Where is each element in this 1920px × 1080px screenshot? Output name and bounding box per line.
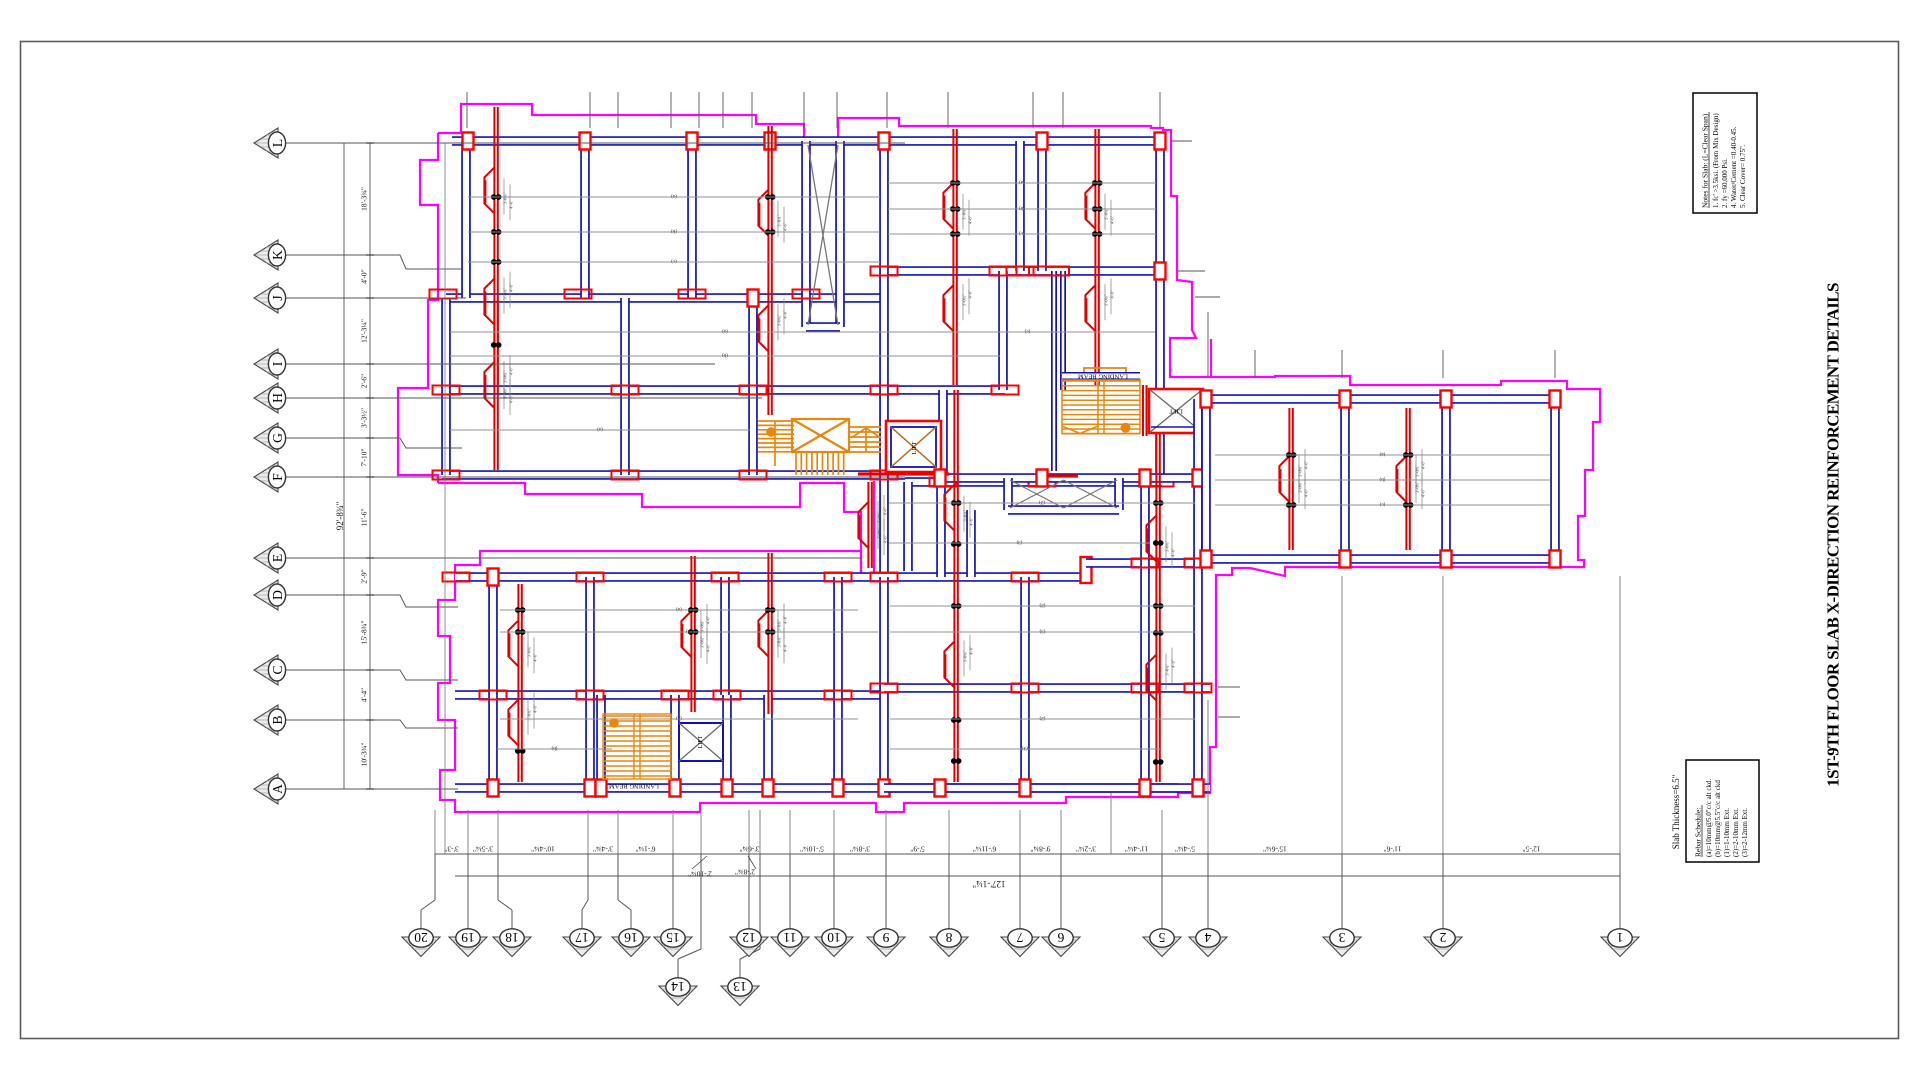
svg-text:G: G — [270, 433, 285, 443]
svg-text:4'-6": 4'-6" — [1110, 215, 1115, 224]
svg-text:4'-6": 4'-6" — [783, 310, 788, 319]
svg-text:5'-9": 5'-9" — [910, 845, 924, 854]
svg-text:L: L — [270, 139, 285, 147]
svg-text:3'-0¾": 3'-0¾" — [963, 509, 968, 521]
svg-text:(2): (2) — [1039, 499, 1045, 504]
svg-text:17: 17 — [575, 930, 589, 945]
svg-text:12'-3¼": 12'-3¼" — [360, 319, 369, 343]
svg-text:5'-10¼": 5'-10¼" — [800, 845, 824, 854]
svg-text:4'-0": 4'-0" — [360, 269, 369, 283]
svg-text:(b): (b) — [686, 628, 692, 633]
svg-text:3'-0¾": 3'-0¾" — [1165, 540, 1170, 552]
svg-text:D: D — [270, 590, 285, 600]
svg-text:(b): (b) — [1379, 476, 1385, 481]
svg-text:5. Clear Cover= 0.75".: 5. Clear Cover= 0.75". — [1739, 144, 1747, 208]
svg-text:LIFT: LIFT — [912, 441, 918, 454]
svg-text:(b): (b) — [551, 745, 557, 750]
svg-text:15'-6¼": 15'-6¼" — [1263, 845, 1287, 854]
svg-text:3'-6¾": 3'-6¾" — [739, 845, 759, 854]
svg-text:3'-2¼": 3'-2¼" — [1076, 845, 1096, 854]
svg-text:4'-6": 4'-6" — [1421, 461, 1426, 470]
svg-text:(2): (2) — [1039, 602, 1045, 607]
svg-text:3'-0¾": 3'-0¾" — [877, 527, 882, 539]
svg-text:2'-10¼": 2'-10¼" — [688, 870, 712, 879]
svg-text:B: B — [270, 715, 285, 724]
svg-text:3'-0¾": 3'-0¾" — [503, 371, 508, 383]
svg-text:4'-6": 4'-6" — [1171, 548, 1176, 557]
svg-text:Notes for Slab: (L=Clear Span): Notes for Slab: (L=Clear Span) — [1701, 113, 1710, 208]
svg-text:4'-6": 4'-6" — [783, 222, 788, 231]
svg-text:2: 2 — [1440, 930, 1447, 945]
svg-text:7'-10": 7'-10" — [360, 448, 369, 466]
svg-text:4'-6": 4'-6" — [706, 644, 711, 653]
svg-text:F: F — [270, 473, 285, 481]
svg-text:4'-6": 4'-6" — [533, 653, 538, 662]
svg-text:4'-6": 4'-6" — [783, 615, 788, 624]
svg-text:(2): (2) — [1039, 715, 1045, 720]
svg-text:E: E — [270, 554, 285, 562]
svg-text:4'-6": 4'-6" — [968, 290, 973, 299]
svg-text:10: 10 — [827, 930, 841, 945]
svg-text:I: I — [270, 361, 285, 366]
svg-text:J: J — [270, 295, 285, 300]
svg-text:C: C — [270, 665, 285, 674]
svg-text:2'-9": 2'-9" — [360, 569, 369, 583]
svg-text:92'-8¾": 92'-8¾" — [335, 501, 345, 530]
svg-text:4'-6": 4'-6" — [783, 643, 788, 652]
svg-text:4'-6": 4'-6" — [883, 507, 888, 516]
svg-text:4'-6": 4'-6" — [509, 395, 514, 404]
svg-text:4'-6": 4'-6" — [883, 535, 888, 544]
svg-text:1ST-9TH FLOOR SLAB X-DIRECTION: 1ST-9TH FLOOR SLAB X-DIRECTION REINFORCE… — [1824, 283, 1843, 787]
svg-text:4'-6": 4'-6" — [706, 616, 711, 625]
svg-text:A: A — [270, 784, 285, 794]
svg-text:3'-3½": 3'-3½" — [360, 408, 369, 428]
svg-text:3'-3": 3'-3" — [444, 845, 458, 854]
svg-text:11'-6": 11'-6" — [360, 509, 369, 527]
svg-text:18'-3¾": 18'-3¾" — [360, 187, 369, 211]
svg-text:3'-0¾": 3'-0¾" — [1298, 465, 1303, 477]
svg-text:4'-6": 4'-6" — [1421, 489, 1426, 498]
svg-text:2'-8¾": 2'-8¾" — [735, 868, 755, 877]
svg-text:LANDING BEAM: LANDING BEAM — [1078, 373, 1128, 380]
svg-text:(a): (a) — [722, 328, 728, 333]
svg-text:3'-0¾": 3'-0¾" — [1415, 481, 1420, 493]
svg-text:(2)=2-10mm Ext.: (2)=2-10mm Ext. — [1732, 808, 1740, 857]
svg-text:18: 18 — [505, 930, 519, 945]
svg-text:3'-0¾": 3'-0¾" — [962, 208, 967, 220]
svg-text:(b): (b) — [1019, 205, 1025, 210]
svg-text:(3)=2-12mm Ext.: (3)=2-12mm Ext. — [1741, 808, 1749, 857]
svg-text:2. fy =60,000 Psi.: 2. fy =60,000 Psi. — [1721, 158, 1729, 208]
svg-text:4'-6": 4'-6" — [509, 200, 514, 209]
svg-text:4'-6": 4'-6" — [533, 704, 538, 713]
svg-text:6: 6 — [1057, 930, 1064, 945]
svg-text:(a): (a) — [671, 193, 677, 198]
svg-text:14: 14 — [671, 979, 685, 994]
svg-text:10'-4¼": 10'-4¼" — [531, 845, 555, 854]
svg-text:3'-8¼": 3'-8¼" — [850, 845, 870, 854]
svg-text:6'-11¼": 6'-11¼" — [973, 845, 997, 854]
svg-text:10'-3¾": 10'-3¾" — [360, 743, 369, 767]
svg-text:(c): (c) — [1379, 501, 1385, 506]
svg-text:3'-0¾": 3'-0¾" — [963, 650, 968, 662]
svg-text:6'-1¼": 6'-1¼" — [635, 845, 655, 854]
svg-text:3'-0¾": 3'-0¾" — [700, 636, 705, 648]
svg-text:(a)=10mm@5.0"c/c alt ckd.: (a)=10mm@5.0"c/c alt ckd. — [1705, 779, 1713, 857]
svg-text:8: 8 — [945, 930, 952, 945]
svg-text:4. Water/Cement =0.40-0.45.: 4. Water/Cement =0.40-0.45. — [1730, 126, 1738, 208]
svg-text:(1)=1-10mm Ext.: (1)=1-10mm Ext. — [1723, 808, 1731, 857]
svg-text:11: 11 — [784, 930, 797, 945]
svg-text:13: 13 — [733, 979, 747, 994]
svg-text:4'-6": 4'-6" — [1171, 659, 1176, 668]
svg-text:5: 5 — [1158, 930, 1165, 945]
svg-text:3'-0¾": 3'-0¾" — [503, 287, 508, 299]
svg-text:127'-1¼": 127'-1¼" — [972, 879, 1005, 889]
svg-text:4'-6": 4'-6" — [509, 283, 514, 292]
svg-text:(a): (a) — [676, 606, 682, 611]
svg-text:(c): (c) — [1024, 328, 1030, 333]
svg-text:Slab Thickness=6.5": Slab Thickness=6.5" — [1671, 774, 1681, 849]
svg-text:19: 19 — [461, 930, 475, 945]
svg-text:3'-0¾": 3'-0¾" — [962, 294, 967, 306]
svg-text:1. fc' >3.5ksi. (From Mix Desi: 1. fc' >3.5ksi. (From Mix Design) — [1712, 113, 1720, 208]
svg-text:4'-6": 4'-6" — [969, 646, 974, 655]
svg-text:3'-0¾": 3'-0¾" — [1165, 663, 1170, 675]
svg-text:LANDING BEAM: LANDING BEAM — [609, 783, 659, 790]
svg-text:4'-6": 4'-6" — [969, 517, 974, 526]
svg-text:H: H — [270, 393, 285, 403]
svg-text:(b)=10mm@5.5"c/c alt ckd: (b)=10mm@5.5"c/c alt ckd — [1714, 780, 1722, 857]
svg-text:3'-0¾": 3'-0¾" — [503, 387, 508, 399]
svg-text:K: K — [270, 250, 285, 260]
svg-text:4: 4 — [1204, 930, 1211, 945]
svg-text:3: 3 — [1338, 930, 1345, 945]
svg-text:(3): (3) — [1039, 628, 1045, 633]
svg-text:3'-0¾": 3'-0¾" — [1298, 481, 1303, 493]
svg-text:3'-0¾": 3'-0¾" — [777, 314, 782, 326]
svg-text:20: 20 — [414, 930, 428, 945]
svg-text:1: 1 — [1617, 930, 1624, 945]
svg-text:4'-4": 4'-4" — [360, 688, 369, 702]
svg-text:(b): (b) — [722, 352, 728, 357]
svg-text:4'-6": 4'-6" — [1304, 489, 1309, 498]
svg-text:4'-6": 4'-6" — [968, 215, 973, 224]
svg-text:5'-4¼": 5'-4¼" — [1175, 845, 1195, 854]
svg-text:3'-0¾": 3'-0¾" — [877, 511, 882, 523]
svg-text:LIFT: LIFT — [1169, 408, 1183, 415]
svg-text:Rebar Schedule:: Rebar Schedule: — [1694, 808, 1703, 857]
svg-text:(3): (3) — [1022, 745, 1028, 750]
svg-text:3'-5¼": 3'-5¼" — [473, 845, 493, 854]
svg-text:LIFT: LIFT — [698, 735, 704, 748]
svg-text:7: 7 — [1016, 930, 1023, 945]
svg-text:(a): (a) — [676, 715, 682, 720]
svg-text:2'-6": 2'-6" — [360, 374, 369, 388]
svg-text:11'-4¼": 11'-4¼" — [1125, 845, 1149, 854]
svg-text:9'-8¾": 9'-8¾" — [1030, 845, 1050, 854]
svg-text:3'-0¾": 3'-0¾" — [527, 645, 532, 657]
svg-text:3'-0¾": 3'-0¾" — [700, 620, 705, 632]
svg-text:9: 9 — [882, 930, 889, 945]
svg-text:12: 12 — [742, 930, 756, 945]
svg-text:3'-0¾": 3'-0¾" — [1104, 294, 1109, 306]
svg-text:3'-0¾": 3'-0¾" — [777, 635, 782, 647]
svg-text:3'-0¾": 3'-0¾" — [1104, 208, 1109, 220]
svg-text:3'-4¾": 3'-4¾" — [593, 845, 613, 854]
svg-text:3'-0¾": 3'-0¾" — [503, 192, 508, 204]
svg-text:4'-6": 4'-6" — [1304, 461, 1309, 470]
svg-text:16: 16 — [624, 930, 638, 945]
svg-text:3'-0¾": 3'-0¾" — [777, 619, 782, 631]
svg-text:(a): (a) — [1379, 451, 1385, 456]
svg-text:(a): (a) — [1019, 179, 1025, 184]
svg-text:11'-6": 11'-6" — [1384, 845, 1402, 854]
svg-text:3'-0¾": 3'-0¾" — [777, 215, 782, 227]
svg-text:(c): (c) — [671, 258, 677, 263]
svg-text:(b): (b) — [671, 228, 677, 233]
svg-text:15: 15 — [666, 930, 680, 945]
svg-text:(c): (c) — [1019, 230, 1025, 235]
svg-text:15'-8¾": 15'-8¾" — [360, 621, 369, 645]
svg-text:(3): (3) — [1016, 539, 1022, 544]
svg-text:4'-6": 4'-6" — [509, 367, 514, 376]
svg-text:3'-0¾": 3'-0¾" — [1415, 465, 1420, 477]
svg-text:12'-5": 12'-5" — [1522, 845, 1540, 854]
svg-text:4'-6": 4'-6" — [1110, 290, 1115, 299]
svg-text:(a): (a) — [597, 426, 603, 431]
